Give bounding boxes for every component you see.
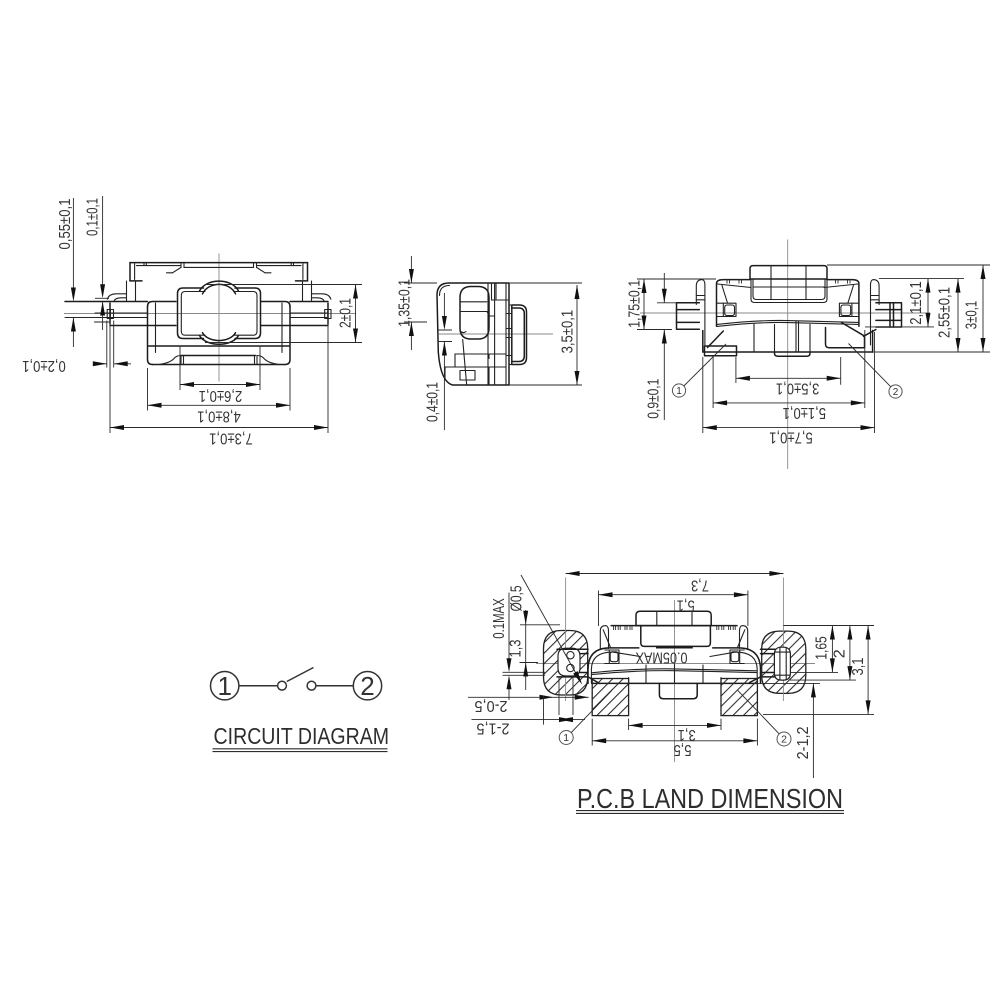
svg-text:2-1,2: 2-1,2 [795,726,812,759]
svg-text:0,1±0,1: 0,1±0,1 [84,198,101,236]
svg-text:2,55±0,1: 2,55±0,1 [937,287,954,338]
svg-text:1: 1 [217,671,231,701]
svg-text:2: 2 [893,387,899,398]
svg-text:2,1±0,1: 2,1±0,1 [908,281,925,325]
svg-text:3,1: 3,1 [850,658,867,676]
svg-text:2: 2 [831,649,848,658]
svg-text:1: 1 [563,732,569,744]
svg-text:1,3: 1,3 [508,640,525,658]
svg-text:0.1MAX: 0.1MAX [491,598,508,639]
svg-text:1,75±0,1: 1,75±0,1 [627,280,644,328]
svg-text:1,35±0,1: 1,35±0,1 [397,279,414,327]
svg-text:7,3±0,1: 7,3±0,1 [209,430,253,447]
svg-text:3,5±0,1: 3,5±0,1 [776,379,820,396]
svg-text:2: 2 [360,671,374,701]
svg-text:2-0,5: 2-0,5 [475,697,508,714]
svg-text:5,1±0,1: 5,1±0,1 [783,404,827,421]
svg-text:0,9±0,1: 0,9±0,1 [646,379,663,419]
svg-text:0,55±0,1: 0,55±0,1 [57,199,74,250]
svg-text:4,8±0,1: 4,8±0,1 [197,407,241,424]
svg-text:CIRCUIT DIAGRAM: CIRCUIT DIAGRAM [214,723,390,749]
svg-text:2-1,5: 2-1,5 [477,719,510,736]
svg-text:1,65: 1,65 [814,636,831,660]
svg-text:3±0,1: 3±0,1 [964,301,981,330]
svg-text:2,6±0,1: 2,6±0,1 [199,387,243,404]
svg-text:P.C.B LAND DIMENSION: P.C.B LAND DIMENSION [577,783,843,814]
svg-text:1: 1 [676,386,682,397]
svg-text:5,5: 5,5 [674,741,692,758]
svg-text:Ø0,5: Ø0,5 [509,586,526,612]
svg-text:5,7±0,1: 5,7±0,1 [769,428,813,445]
svg-text:5,1: 5,1 [677,597,695,614]
svg-text:3,5±0,1: 3,5±0,1 [559,310,576,354]
svg-text:0,4±0,1: 0,4±0,1 [425,382,442,422]
svg-text:0,2±0,1: 0,2±0,1 [22,357,66,374]
svg-text:7,3: 7,3 [691,577,709,594]
svg-text:3,1: 3,1 [678,726,696,743]
svg-text:2: 2 [781,734,787,746]
svg-text:2±0,1: 2±0,1 [338,298,355,328]
svg-text:0.05MAX: 0.05MAX [635,649,688,666]
